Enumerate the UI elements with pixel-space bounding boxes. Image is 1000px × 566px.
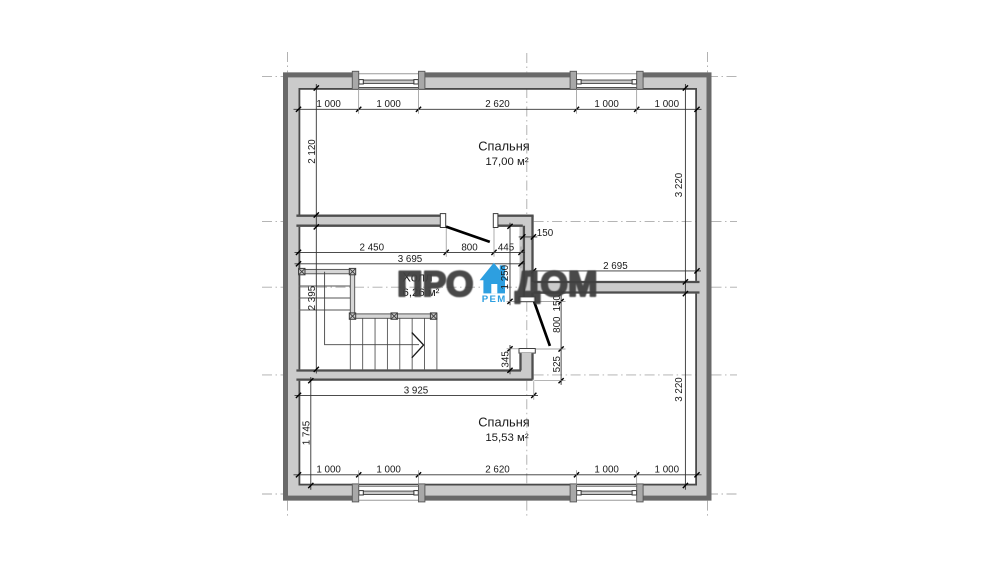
svg-text:1 745: 1 745 bbox=[302, 420, 313, 445]
svg-text:800: 800 bbox=[552, 316, 563, 333]
svg-text:1 000: 1 000 bbox=[594, 99, 619, 110]
svg-text:17,00 м²: 17,00 м² bbox=[485, 156, 529, 168]
svg-text:1 000: 1 000 bbox=[655, 99, 680, 110]
svg-text:1 000: 1 000 bbox=[316, 465, 341, 476]
svg-text:1 000: 1 000 bbox=[376, 465, 401, 476]
svg-text:150: 150 bbox=[537, 228, 554, 239]
svg-text:РЕМ: РЕМ bbox=[482, 294, 507, 305]
svg-text:15,53 м²: 15,53 м² bbox=[485, 432, 529, 444]
svg-text:2 120: 2 120 bbox=[307, 139, 318, 164]
svg-text:2 620: 2 620 bbox=[485, 465, 510, 476]
svg-text:345: 345 bbox=[500, 351, 511, 368]
svg-text:2 695: 2 695 bbox=[603, 261, 628, 272]
svg-text:2 395: 2 395 bbox=[307, 285, 318, 310]
svg-text:2 620: 2 620 bbox=[485, 99, 510, 110]
svg-text:1 250: 1 250 bbox=[500, 264, 511, 289]
svg-text:ПРО: ПРО bbox=[397, 264, 473, 304]
svg-text:Спальня: Спальня bbox=[478, 138, 529, 153]
svg-text:1 000: 1 000 bbox=[376, 99, 401, 110]
svg-text:525: 525 bbox=[552, 355, 563, 372]
svg-text:2 450: 2 450 bbox=[360, 242, 385, 253]
svg-text:3 220: 3 220 bbox=[674, 172, 685, 197]
svg-text:1 000: 1 000 bbox=[316, 99, 341, 110]
svg-text:445: 445 bbox=[498, 242, 515, 253]
svg-text:Спальня: Спальня bbox=[478, 414, 529, 429]
svg-text:ДОМ: ДОМ bbox=[515, 264, 597, 304]
svg-text:1 000: 1 000 bbox=[655, 465, 680, 476]
svg-text:3 220: 3 220 bbox=[674, 377, 685, 402]
svg-text:1 000: 1 000 bbox=[594, 465, 619, 476]
svg-text:800: 800 bbox=[461, 242, 478, 253]
svg-text:3 925: 3 925 bbox=[404, 385, 429, 396]
